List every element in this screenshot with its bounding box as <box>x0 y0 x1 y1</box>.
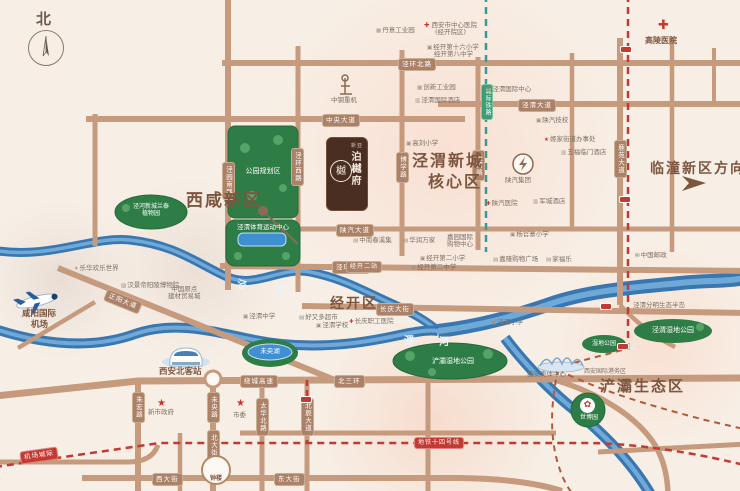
park-expo-label: 世博园 <box>580 414 598 421</box>
poi-zhonggang: 中钢重机 <box>331 97 357 104</box>
road-badge-jingwei-avenue: 泾渭大道 <box>518 99 556 112</box>
lightning-icon <box>513 154 533 174</box>
interchange-ring <box>205 371 221 387</box>
road-badge-taihua-road: 太华北路 <box>256 398 269 436</box>
expo-flower-icon: ✿ <box>580 398 595 413</box>
metro-station-marker <box>300 396 312 403</box>
poi-jijia-office: ★姬家街道办事处 <box>544 136 595 143</box>
road-badge-weiyang-road: 未央路 <box>207 392 220 423</box>
road-badge-changqing-street: 长庆大街 <box>376 303 414 316</box>
poi-jialong-plaza: ▤嘉隆购物广场 <box>493 256 538 263</box>
river-label-wei: 河 <box>439 333 449 348</box>
poi-jingwei-middle: ▣泾渭中学 <box>243 313 275 320</box>
road-badge-west-street: 西大街 <box>152 473 183 486</box>
road-badge-jinghuan-north: 泾环北路 <box>398 58 436 71</box>
poi-wufu-hotel: ▥五福临门酒店 <box>561 149 606 156</box>
poi-school16-8: ▣经开第十六小学经开第八中学 <box>427 44 479 59</box>
park-wetland-small-label: 湿地公园 <box>592 340 616 347</box>
road-badge-jinghuan-west: 泾环西路 <box>291 148 304 186</box>
road-badge-shanqi-avenue: 陕汽大道 <box>336 224 374 237</box>
road-badge-beichen-avenue: 北辰大道 <box>301 398 314 436</box>
gov-star-icon: ★ <box>157 398 166 410</box>
metro-station-marker <box>619 196 631 203</box>
poi-center-hospital: ✚ 西安市中心医院(经开院区) <box>424 22 477 37</box>
poi-jingwei-intl-hotel: ▥泾渭国际酒店 <box>415 97 460 104</box>
poi-shanqi-group: 陕汽集团 <box>505 177 531 184</box>
jingkai-2-station-badge: 经开二站 <box>346 261 382 273</box>
park-chanba-wetland-label: 浐灞湿地公园 <box>432 357 474 365</box>
area-xixian: 西咸新区 <box>186 186 262 211</box>
poi-airport: 咸阳国际机场 <box>22 309 56 331</box>
lintong-arrow-icon <box>682 176 706 191</box>
bell-tower-label: 钟楼 <box>203 473 229 482</box>
river-label-jing: 河 <box>274 279 286 295</box>
poi-shiwei: 市委 <box>233 412 246 419</box>
poi-jingwei-primary: ▣泾渭小学 <box>491 319 523 326</box>
poi-haoyouduo: ▤好又多超市 <box>299 314 338 321</box>
poi-north-station: 西安北客站 <box>159 368 202 378</box>
poi-lehua: ✦乐华欢乐世界 <box>74 265 119 272</box>
poi-china-post: ✉中国邮政 <box>635 252 667 259</box>
poi-changqing-hospital: ✚长庆职工医院 <box>349 318 394 325</box>
map-geometry <box>0 0 740 491</box>
area-lintong: 临潼新区方向 <box>650 158 740 178</box>
metro-station-marker <box>620 46 632 53</box>
hospital-cross-icon: ✚ <box>658 19 669 34</box>
metro-station-marker <box>617 343 629 350</box>
river-label-wei: 渭 <box>404 332 414 347</box>
park-botanic-label: 泾河新城兰泰植物园 <box>133 203 169 217</box>
road-badge-zhuhong-road: 朱宏路 <box>132 392 145 423</box>
poi-china-origin: 中国原点建材贸易城 <box>168 286 201 301</box>
poi-new-city-gov: 新市政府 <box>148 409 174 416</box>
road-badge-luyuan-avenue: 鹿苑大道 <box>614 140 627 178</box>
poi-jiayuan-mall: 嘉园国际购物中心 <box>447 234 473 249</box>
poi-aoti-center: 西安奥体中心 <box>527 371 566 378</box>
project-logo: 樾 新亚 泊樾府 <box>326 137 368 211</box>
poi-shanqi-school: ▣陕汽技校 <box>536 117 568 124</box>
poi-zhongnan: ▤中南春溪集 <box>353 237 392 244</box>
poi-jk2-primary: ▣经开第二小学 <box>420 255 465 262</box>
factory-tower-icon <box>340 75 352 94</box>
area-jingkai: 经开区 <box>330 293 378 313</box>
road-badge-north-3rd-ring: 北三环 <box>334 375 365 388</box>
logo-brand: 新亚 <box>351 142 363 149</box>
compass-icon <box>28 30 64 66</box>
bell-tower-landmark: 钟楼 <box>201 455 231 485</box>
location-map: 北 樾 新亚 泊樾府 西咸新区 泾渭新城 核心区 经开区 浐灞生态区 临潼新区方… <box>0 0 740 491</box>
area-chanba: 浐灞生态区 <box>600 375 685 396</box>
train-icon <box>162 348 210 368</box>
poi-huarun: ▤华润万家 <box>403 237 435 244</box>
poi-shanqi-hospital: ✚陕汽医院 <box>486 200 518 207</box>
park-jingwei-wetland-label: 泾渭湿地公园 <box>652 326 694 334</box>
poi-danyi-park: ▦丹意工业园 <box>376 27 415 34</box>
area-core-line2: 核心区 <box>428 168 482 192</box>
logo-project-name: 泊樾府 <box>347 151 362 187</box>
poi-chuangxin-park: ▦创新工业园 <box>417 84 456 91</box>
shiwei-star-icon: ★ <box>236 398 245 410</box>
park-planning-label: 公园规划区 <box>246 167 281 175</box>
poi-jingwei-intl-center: ▦泾渭国际中心 <box>486 86 531 93</box>
park-sports-label: 泾渭体育运动中心 <box>237 224 289 232</box>
metro-14-badge: 地铁十四号线 <box>414 437 464 449</box>
poi-yangguanzhai-school: ▣杨官寨小学 <box>510 231 549 238</box>
metro-station-marker <box>600 303 612 310</box>
poi-gaoling-hospital: 高陵医院 <box>645 36 677 45</box>
lake-weiyang-label: 未央湖 <box>260 348 280 356</box>
north-label: 北 <box>36 8 51 29</box>
road-badge-east-street: 东大街 <box>274 473 305 486</box>
road-badge-raocheng-expwy: 绕城高速 <box>240 375 278 388</box>
poi-jiafule: ▤家福乐 <box>546 256 572 263</box>
road-badge-central-avenue: 中央大道 <box>322 114 360 127</box>
road-badge-boxue-road: 博学路 <box>396 152 409 183</box>
poi-jk2-middle: ▣经开第二中学 <box>411 264 456 271</box>
area-peninsula: 泾渭分明生态半岛 <box>633 302 685 309</box>
poi-juncheng-hotel: ▥军城酒店 <box>533 198 565 205</box>
poi-jingwei-school: ▣泾渭学校 <box>316 322 348 329</box>
